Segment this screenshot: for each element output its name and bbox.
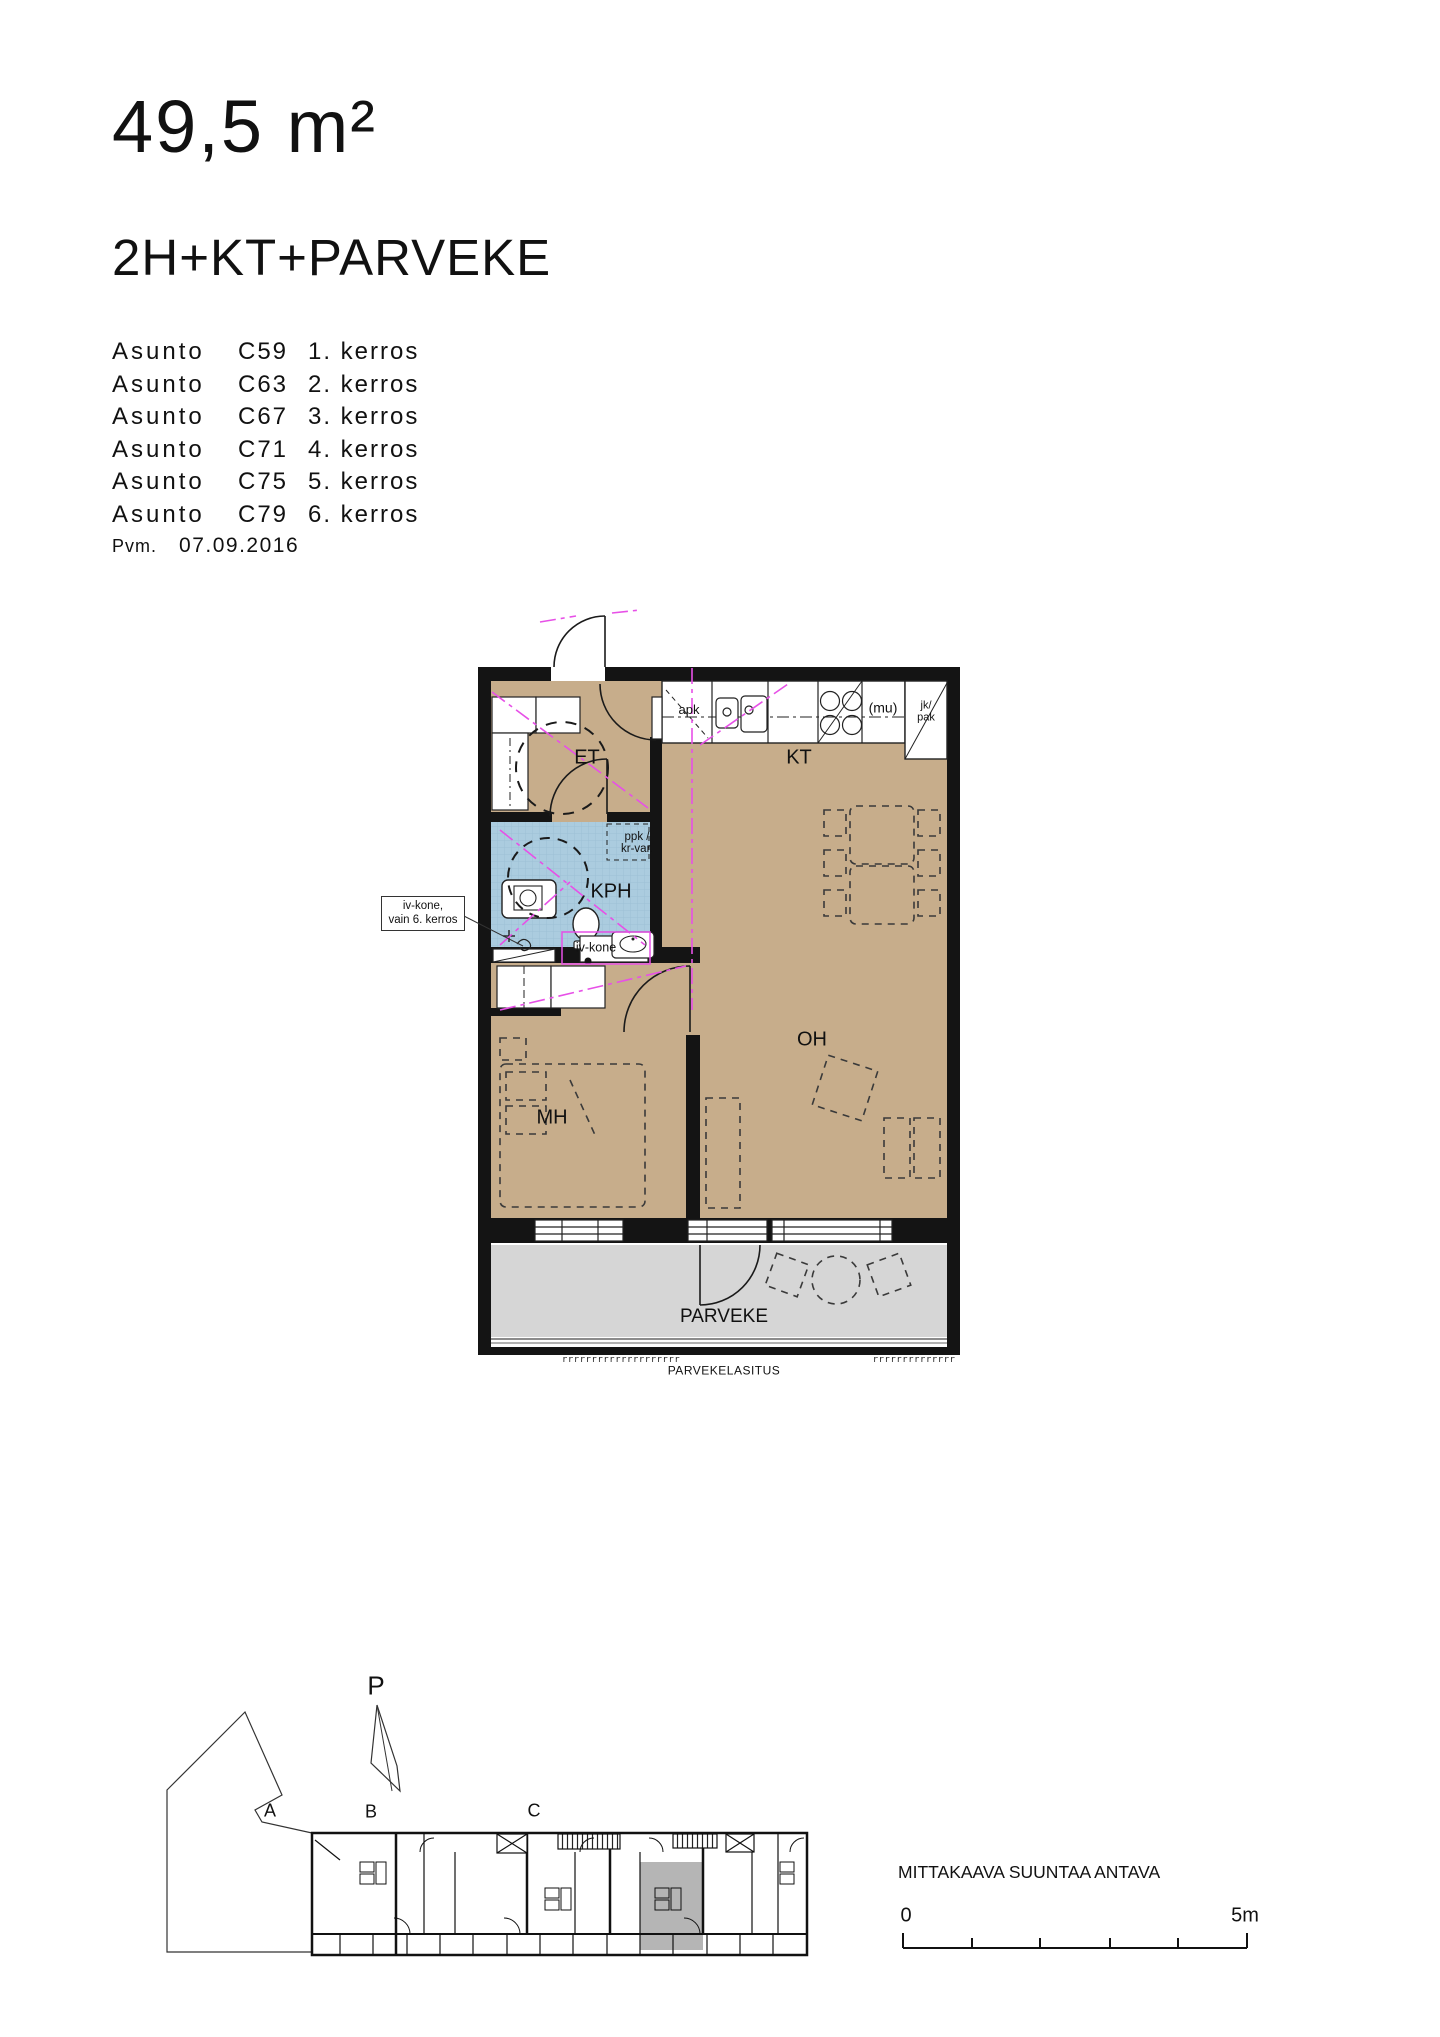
room-label-kph: KPH xyxy=(590,882,631,903)
glazing-label: PARVEKELASITUS xyxy=(668,1365,781,1378)
fixture-label-krvar: kr-var. xyxy=(621,843,653,855)
callout-line1: iv-kone, xyxy=(382,899,464,913)
apartment-floor: 6. kerros xyxy=(308,501,419,529)
glazing-ticks-right: rrrrrrrrrrrrrr xyxy=(873,1355,956,1365)
apartment-row: Asunto C63 2. kerros xyxy=(112,369,419,402)
scale-bar xyxy=(903,1933,1247,1948)
scale-start-label: 0 xyxy=(900,1906,911,1927)
fixture-label-jk: jk/ xyxy=(917,700,935,712)
fixture-label-pak: pak xyxy=(917,712,935,724)
apartment-label: Asunto xyxy=(112,436,238,464)
apartment-code: C59 xyxy=(238,338,308,366)
apartment-floor: 4. kerros xyxy=(308,436,419,464)
fixture-label-mu: (mu) xyxy=(869,701,898,716)
apartment-layout-title: 2H+KT+PARVEKE xyxy=(112,228,551,287)
room-label-et: ET xyxy=(574,748,600,769)
windows xyxy=(535,1220,892,1241)
north-label: P xyxy=(367,1672,384,1699)
apartment-code: C79 xyxy=(238,501,308,529)
apartment-floor: 1. kerros xyxy=(308,338,419,366)
page-title-area: 49,5 m² xyxy=(112,84,377,169)
date-value: 07.09.2016 xyxy=(179,534,299,557)
apartment-list: Asunto C59 1. kerros Asunto C63 2. kerro… xyxy=(112,336,419,531)
callout-line2: vain 6. kerros xyxy=(382,913,464,927)
north-arrow-icon xyxy=(371,1705,400,1791)
apartment-row: Asunto C75 5. kerros xyxy=(112,466,419,499)
scale-note: MITTAKAAVA SUUNTAA ANTAVA xyxy=(898,1862,1160,1883)
apartment-label: Asunto xyxy=(112,403,238,431)
apartment-label: Asunto xyxy=(112,371,238,399)
section-label-c: C xyxy=(528,1802,541,1821)
apartment-floor: 5. kerros xyxy=(308,468,419,496)
date-label: Pvm. xyxy=(112,536,157,556)
floorplan-sheet: 49,5 m² 2H+KT+PARVEKE Asunto C59 1. kerr… xyxy=(0,0,1440,2037)
room-label-mh: MH xyxy=(536,1108,567,1129)
fixture-label-ppk: ppk / xyxy=(621,831,653,843)
apartment-label: Asunto xyxy=(112,338,238,366)
room-label-kt: KT xyxy=(786,748,812,769)
iv-kone-callout: iv-kone, vain 6. kerros xyxy=(381,896,465,931)
apartment-row: Asunto C59 1. kerros xyxy=(112,336,419,369)
room-label-parveke: PARVEKE xyxy=(680,1307,768,1327)
apartment-floor: 2. kerros xyxy=(308,371,419,399)
apartment-row: Asunto C79 6. kerros xyxy=(112,499,419,532)
section-label-a: A xyxy=(264,1802,276,1821)
scale-end-label: 5m xyxy=(1231,1906,1259,1927)
fixture-label-ppk-krvar: ppk / kr-var. xyxy=(621,831,653,855)
apartment-label: Asunto xyxy=(112,468,238,496)
site-plan xyxy=(167,1705,1247,1955)
apartment-code: C75 xyxy=(238,468,308,496)
apartment-label: Asunto xyxy=(112,501,238,529)
glazing-ticks-left: rrrrrrrrrrrrrrrrrrrr xyxy=(562,1355,680,1365)
apartment-code: C67 xyxy=(238,403,308,431)
date-row: Pvm.07.09.2016 xyxy=(112,534,299,558)
apartment-row: Asunto C71 4. kerros xyxy=(112,434,419,467)
section-label-b: B xyxy=(365,1803,377,1822)
fixture-label-apk: apk xyxy=(679,703,700,717)
apartment-row: Asunto C67 3. kerros xyxy=(112,401,419,434)
apartment-floor: 3. kerros xyxy=(308,403,419,431)
fixture-label-jk-pak: jk/ pak xyxy=(917,700,935,723)
fixture-label-iv-kone: iv-kone xyxy=(576,941,616,954)
apartment-code: C63 xyxy=(238,371,308,399)
room-label-oh: OH xyxy=(797,1030,827,1051)
apartment-code: C71 xyxy=(238,436,308,464)
plan-drawing xyxy=(0,0,1440,2037)
